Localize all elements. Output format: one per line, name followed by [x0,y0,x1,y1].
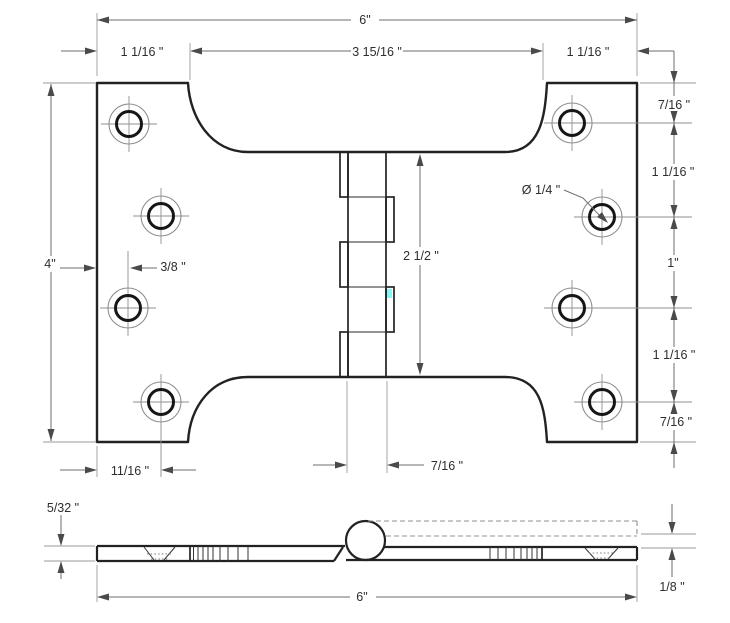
dim-label-right-chain-5: 7/16 " [660,415,692,429]
side-barrel-circle [346,521,385,560]
dim-label-leaf-thickness: 5/32 " [47,501,79,515]
side-countersink-right [585,548,618,559]
dim-label-right-chain-3: 1" [667,256,678,270]
dim-label-top-width: 6" [359,13,370,27]
dim-label-right-chain-4: 1 1/16 " [653,348,696,362]
dimension-bottom-hole-offset: 11/16 " [60,446,196,478]
side-dashed-leaf [368,521,637,536]
dim-label-right-chain-1: 7/16 " [658,98,690,112]
dimension-top-offsets: 1 1/16 " 3 15/16 " 1 1/16 " [61,43,674,80]
dim-label-right-offset: 1 1/16 " [567,45,610,59]
hinge-technical-drawing: 6" 1 1/16 " 3 15/16 " 1 1/16 " [0,0,730,623]
plan-view: 6" 1 1/16 " 3 15/16 " 1 1/16 " [43,13,696,478]
side-knuckle-hatch-right [490,547,542,560]
cyan-artifact [387,289,392,298]
dim-label-height: 4" [44,257,55,271]
dimension-side-width: 6" [97,565,637,604]
dim-label-bottom-hole-offset: 11/16 " [111,464,149,478]
dimension-right-chain: 7/16 " 1 1/16 " 1" 1 1/16 " 7/16 " [640,51,696,468]
side-knuckle-hatch-left [190,546,248,561]
dim-label-left-offset: 1 1/16 " [121,45,164,59]
dim-label-barrel-width: 7/16 " [431,459,463,473]
dim-label-hinge-gap: 1/8 " [659,580,684,594]
dim-label-hole-backset: 3/8 " [160,260,185,274]
dim-label-center-span: 3 15/16 " [352,45,402,59]
side-view: 5/32 " 6" 1/8 " [44,501,696,604]
drawing-page: 6" 1 1/16 " 3 15/16 " 1 1/16 " [0,0,730,623]
side-left-leaf [97,546,345,561]
dim-label-hole-diameter: Ø 1/4 " [522,183,560,197]
dimension-hinge-gap: 1/8 " [641,504,696,594]
side-countersink-left [144,547,175,560]
dimension-height: 4" [43,83,96,442]
dimension-leaf-thickness: 5/32 " [44,501,95,579]
dim-label-right-chain-2: 1 1/16 " [652,165,695,179]
dim-label-side-width: 6" [356,590,367,604]
dim-label-knuckle-length: 2 1/2 " [403,249,439,263]
dimension-barrel-width: 7/16 " [313,381,463,473]
